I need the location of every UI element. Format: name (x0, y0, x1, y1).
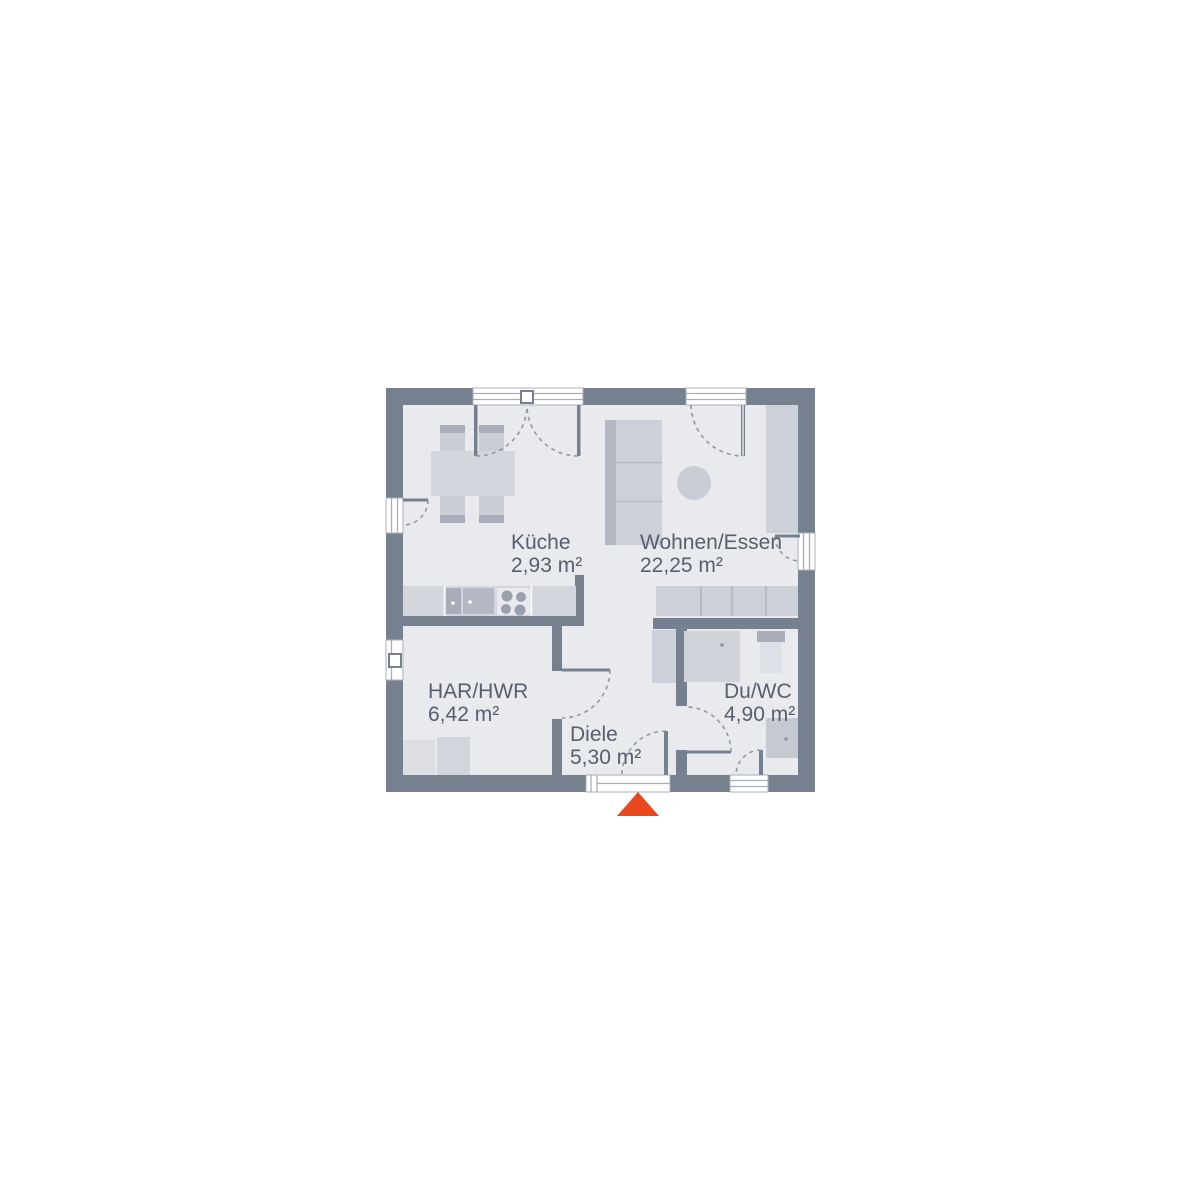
window-right (798, 533, 815, 570)
wall-wohnen-south (653, 618, 798, 629)
stove-burner-icon (516, 592, 526, 602)
wall-kitchen-east-stub (575, 575, 584, 626)
dryer (437, 737, 470, 775)
window-handle-icon (521, 391, 533, 403)
washbasin-drain-icon (784, 737, 788, 741)
chair-backrest (479, 515, 504, 523)
sofa-backrest (605, 420, 616, 545)
chair-backrest (479, 425, 504, 433)
entrance-arrow-icon (617, 792, 659, 816)
wall-cabinet (766, 405, 798, 533)
shower-drain-icon (720, 643, 724, 647)
stove-burner-icon (501, 604, 511, 614)
toilet-bowl (760, 642, 782, 673)
window-bathroom (730, 775, 768, 792)
sofa (616, 420, 662, 545)
entrance-door-leaf (664, 731, 668, 775)
window-top-right (686, 388, 746, 405)
room-label-kueche: Küche (511, 531, 571, 554)
shower (684, 631, 740, 682)
washer (403, 740, 435, 775)
window-left-upper (386, 498, 403, 533)
round-table (677, 466, 711, 500)
door-leaf (577, 405, 581, 456)
hall-wardrobe (652, 630, 676, 683)
room-area-har-hwr: 6,42 m² (428, 703, 499, 726)
wall-har-diele-upper (552, 626, 562, 671)
chair-backrest (440, 425, 465, 433)
sink-drain-icon (451, 601, 455, 605)
sideboard (656, 586, 798, 616)
toilet-tank (757, 631, 785, 642)
floor-plan-page: Küche 2,93 m² Wohnen/Essen 22,25 m² HAR/… (0, 0, 1200, 1200)
window-handle-icon (389, 654, 401, 667)
room-area-du-wc: 4,90 m² (724, 703, 795, 726)
kitchen-sink (446, 588, 461, 614)
appliance-knob-icon (468, 600, 472, 604)
casement-leaf (759, 750, 763, 775)
room-label-wohnen: Wohnen/Essen (640, 531, 782, 554)
room-area-diele: 5,30 m² (570, 746, 641, 769)
floor-plan-drawing: Küche 2,93 m² Wohnen/Essen 22,25 m² HAR/… (0, 0, 1200, 1200)
chair-backrest (440, 515, 465, 523)
dining-table (431, 451, 515, 496)
stove-burner-icon (502, 591, 513, 602)
room-area-wohnen: 22,25 m² (640, 554, 723, 577)
wall-duwc-west-lower (676, 750, 687, 775)
room-label-har-hwr: HAR/HWR (428, 680, 528, 703)
room-label-du-wc: Du/WC (724, 680, 792, 703)
kitchen-appliance (463, 588, 494, 614)
stove-burner-icon (515, 605, 526, 616)
room-area-kueche: 2,93 m² (511, 554, 582, 577)
room-label-diele: Diele (570, 723, 618, 746)
wall-kitchen-south (403, 616, 584, 626)
door-leaf (474, 405, 478, 456)
wall-har-diele-lower (552, 719, 562, 775)
